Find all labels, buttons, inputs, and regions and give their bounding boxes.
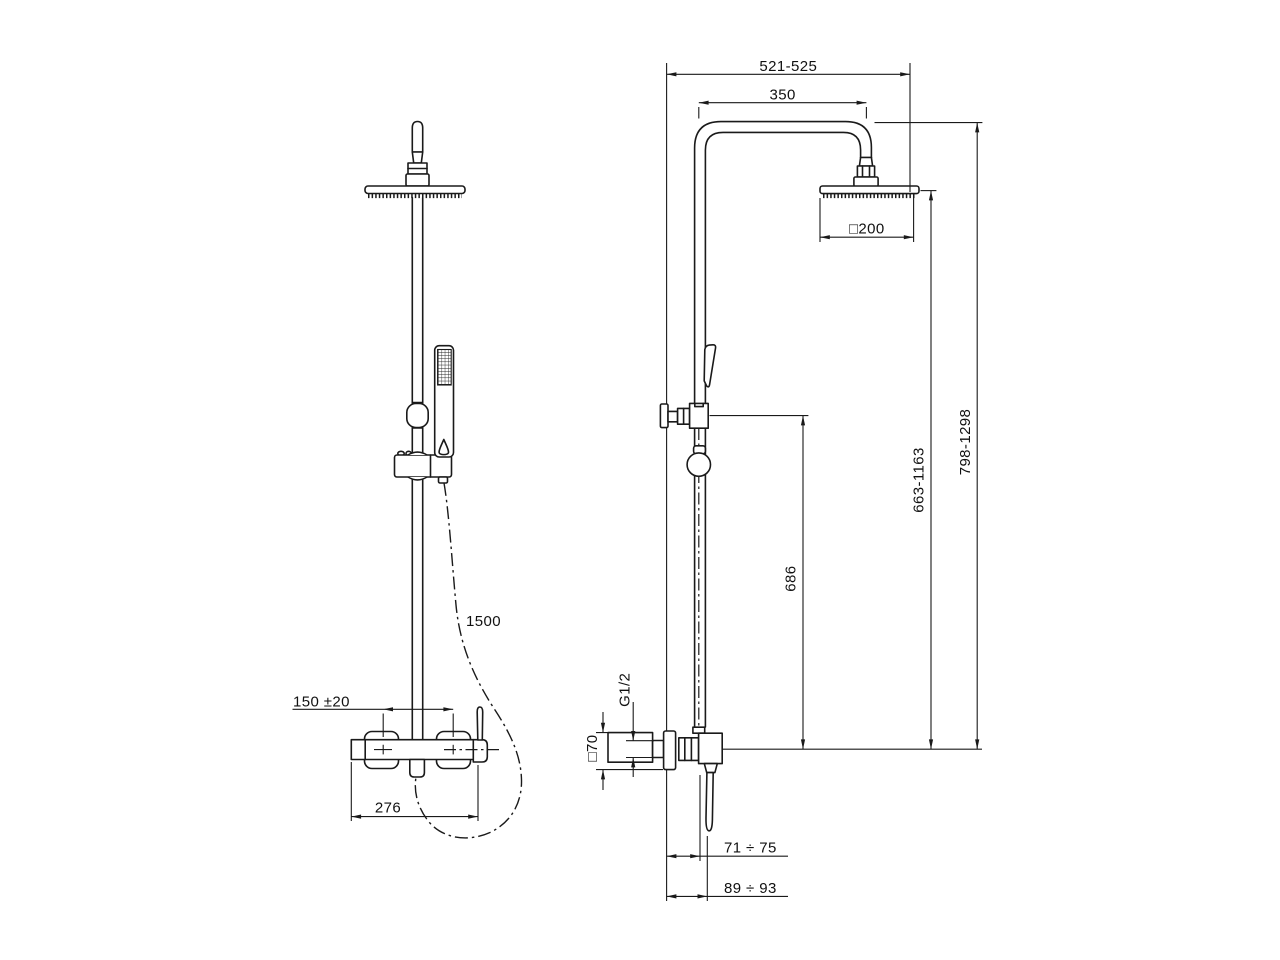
slider-knob-side	[687, 453, 710, 476]
hand-shower-hose	[415, 483, 521, 838]
dim-hose-length-label: 1500	[466, 613, 501, 630]
mixer-valve-side	[699, 733, 723, 763]
dim-arm-projection-label: 350	[769, 86, 795, 103]
shower-arm-end-front	[412, 122, 422, 153]
mixer-lever-front	[477, 707, 483, 740]
hand-shower-face-grid	[438, 350, 452, 386]
dim-overall-height-label: 798-1298	[957, 409, 974, 476]
overhead-shower-side	[820, 186, 919, 194]
arm-nut-side	[857, 166, 874, 177]
wall-union-stub	[653, 741, 664, 758]
arm-taper-side	[859, 158, 872, 167]
dim-diverter-height-label: 686	[782, 565, 799, 591]
mixer-handle-block	[473, 740, 487, 762]
dim-head-size-label: □200	[849, 221, 885, 238]
dim-wall-handle-label: 71 ÷ 75	[724, 840, 777, 857]
side-view: 521-525 350 □200 798-1298 663-1163 686	[584, 58, 982, 901]
mixer-lever-side	[706, 773, 713, 831]
dim-thread-label: G1/2	[616, 673, 633, 707]
dim-head-height-label: 663-1163	[911, 447, 928, 512]
arm-taper-front	[412, 152, 422, 163]
riser-end-cap	[693, 727, 705, 733]
wall-plate-side	[664, 731, 676, 770]
mixer-outlet-taper	[704, 764, 717, 773]
overhead-shower-front	[365, 186, 465, 194]
dim-arm-projection-ext	[699, 107, 867, 119]
diverter-handle-stem	[668, 411, 678, 421]
diverter-handle-flange	[660, 404, 668, 428]
shower-arm-side	[695, 122, 872, 727]
technical-drawing: 150 ±20 276 1500	[0, 0, 1280, 960]
head-adapter-side	[854, 177, 878, 187]
dim-overall-width-label: 521-525	[759, 58, 817, 75]
slider-bracket-front	[395, 455, 452, 477]
bracket-clamp-bottom	[408, 477, 427, 480]
mixer-outlet-stub	[410, 760, 425, 778]
hand-shower-side	[704, 345, 715, 387]
dim-body-width-label: 276	[375, 800, 401, 817]
dim-escutcheon-label: □70	[584, 735, 601, 762]
dim-wall-handle-tip-label: 89 ÷ 93	[724, 880, 777, 897]
mixer-nut-side	[679, 738, 699, 761]
dim-inlet-spacing-label: 150 ±20	[293, 694, 350, 711]
hose-nipple	[439, 477, 448, 483]
front-view: 150 ±20 276 1500	[293, 122, 522, 838]
diverter-knob-front	[407, 404, 428, 428]
head-adapter-front	[406, 174, 429, 186]
